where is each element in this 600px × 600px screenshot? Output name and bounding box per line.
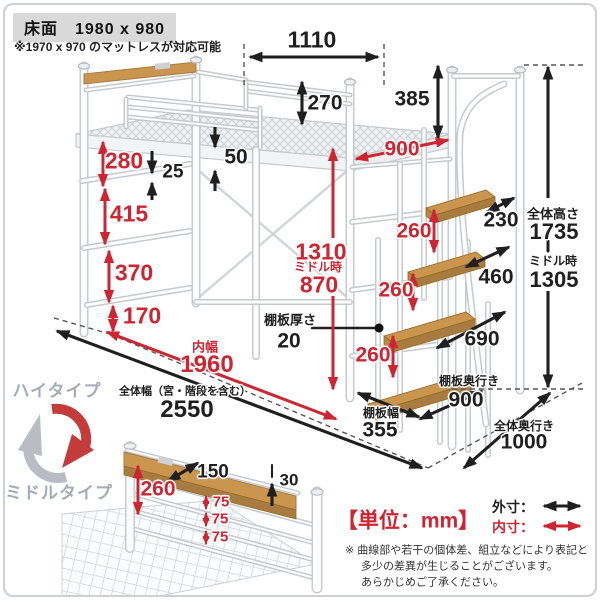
footnote-line-2: 多少の差異が生じることがございます。: [361, 562, 558, 573]
dim-ladder-top-gap: 280: [105, 150, 143, 173]
dim-shelf-thickness-label: 棚板厚さ: [264, 314, 316, 327]
type-cycle-icon: [18, 409, 94, 478]
detail-slat-gap-2: 75: [212, 512, 229, 527]
dim-tread-depth-4-label: 棚板奥行き: [439, 375, 499, 387]
dim-overall-height: 1735: [530, 221, 579, 243]
dim-overall-height-middle-label: ミドル時: [529, 255, 577, 267]
dim-tread-depth-3: 690: [464, 329, 499, 350]
legend-outer-label: 外寸：: [492, 500, 534, 514]
dim-guard-rail-height: 270: [307, 93, 342, 114]
product-dimension-diagram: 床面 1980 x 980 ※1970 x 970 のマットレスが対応可能 11…: [0, 0, 600, 600]
dim-overall-height-middle: 1305: [530, 269, 579, 291]
dim-top-opening-width: 1110: [288, 29, 337, 52]
dim-riser-2: 260: [378, 280, 413, 301]
detail-slat-gap-3: 75: [212, 530, 229, 545]
type-label-high: ハイタイプ: [13, 383, 102, 400]
dim-tread-depth-1: 230: [483, 210, 518, 231]
dim-inner-width: 1960: [180, 353, 233, 377]
dim-overall-depth: 1000: [501, 432, 548, 453]
dim-overall-width: 2550: [160, 398, 213, 422]
dim-deck-frame-thickness: 50: [224, 147, 247, 168]
footnote-line-1: ※ 曲線部や若干の個体差、組立などにより表記と: [345, 546, 588, 557]
detail-slat-gap-1: 75: [213, 495, 230, 510]
dim-ladder-gap-2: 415: [110, 203, 148, 226]
detail-shelf-depth: 150: [197, 463, 229, 482]
dim-rung-thickness: 25: [162, 163, 183, 182]
dim-post-above-deck: 385: [394, 89, 429, 110]
dim-tread-depth-2: 460: [478, 267, 513, 288]
dim-deck-inner-depth: 900: [384, 139, 419, 160]
detail-headboard-height: 260: [140, 479, 175, 500]
legend-inner-label: 内寸：: [492, 520, 534, 534]
footnote-line-3: あらかじめご了承ください。: [361, 578, 504, 589]
dim-tread-depth-4: 900: [448, 390, 483, 411]
mattress-note: ※1970 x 970 のマットレスが対応可能: [14, 38, 221, 55]
type-label-middle: ミドルタイプ: [5, 485, 113, 502]
dim-ladder-gap-3: 370: [115, 262, 153, 285]
dim-ladder-bottom-gap: 170: [123, 305, 161, 328]
unit-label: 【単位：mm】: [337, 511, 479, 532]
dim-riser-1: 260: [396, 221, 431, 242]
dim-tread-width-label: 棚板幅: [363, 407, 399, 419]
dim-riser-3: 260: [355, 345, 390, 366]
dim-under-clearance-middle: 870: [300, 274, 338, 297]
dim-shelf-thickness: 20: [277, 331, 300, 352]
dim-tread-width: 355: [362, 420, 397, 441]
detail-board-thickness: 30: [280, 472, 299, 489]
